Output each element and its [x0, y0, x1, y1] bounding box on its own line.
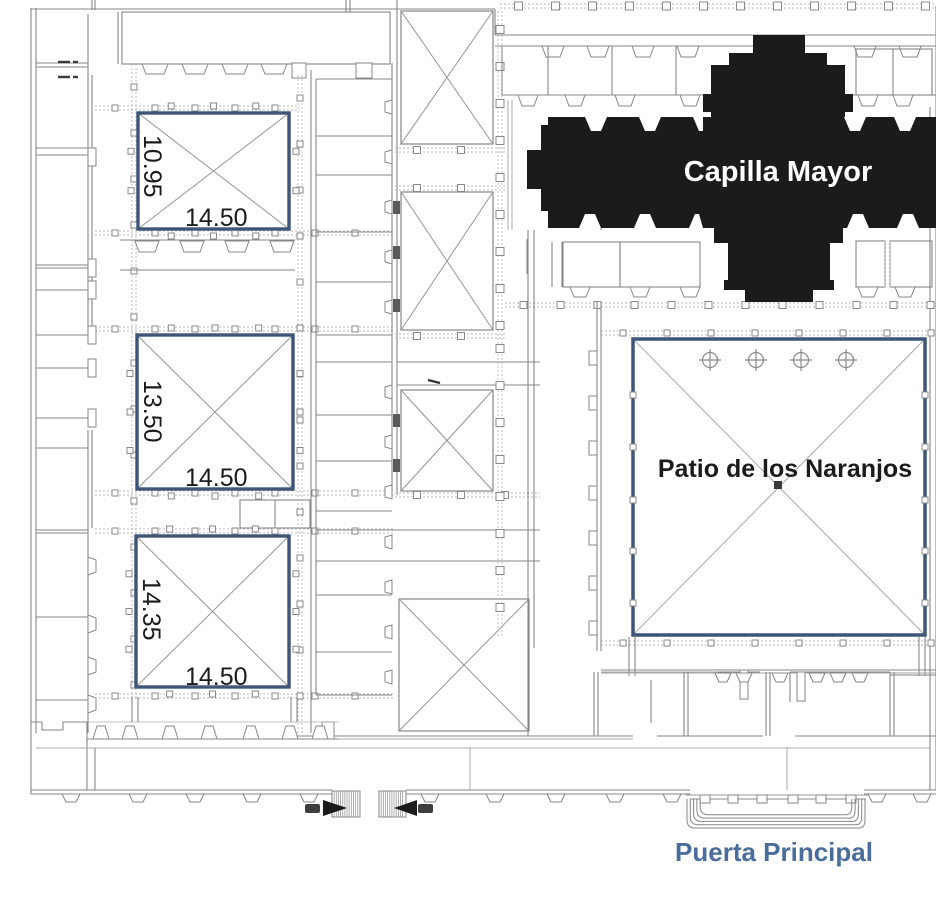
- svg-text:14.50: 14.50: [185, 204, 248, 232]
- svg-text:Capilla Mayor: Capilla Mayor: [684, 156, 873, 188]
- svg-text:14.50: 14.50: [185, 663, 248, 691]
- svg-text:14.35: 14.35: [137, 578, 165, 641]
- svg-text:Patio de los Naranjos: Patio de los Naranjos: [658, 455, 912, 483]
- svg-text:10.95: 10.95: [138, 135, 166, 198]
- svg-text:14.50: 14.50: [185, 464, 248, 492]
- svg-text:13.50: 13.50: [138, 380, 166, 443]
- svg-text:Puerta Principal: Puerta Principal: [675, 837, 873, 867]
